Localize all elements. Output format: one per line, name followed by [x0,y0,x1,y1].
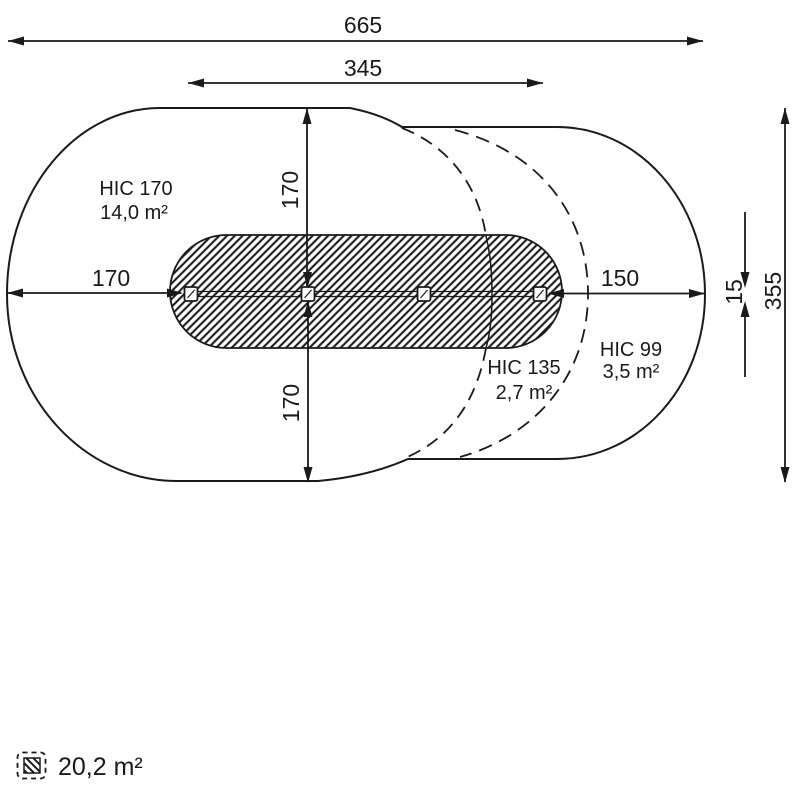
zone-label-hic170: HIC 170 [99,178,172,200]
label-vertical-down: 170 [278,384,304,422]
label-left-clearance: 170 [92,265,130,291]
arrowhead-left [188,79,204,88]
swing-post [185,287,198,301]
arrowhead-up [781,108,790,124]
label-total-width: 665 [344,12,382,38]
zone-area-hic170: 14,0 m² [100,202,168,224]
label-right-clearance: 150 [601,265,639,291]
arrowhead-right [689,289,705,298]
legend-area-value: 20,2 m² [58,753,143,781]
swing-post [302,287,315,301]
zone-label-hic99: HIC 99 [600,339,662,361]
label-post-span: 345 [344,55,382,81]
arrowhead-left [7,289,23,298]
label-total-height: 355 [760,272,786,310]
label-beam-thickness: 15 [721,279,747,305]
diagram-canvas: 665 345 170 150 170 170 355 15 HIC 170 1… [0,0,800,800]
hic135-dashed-boundary-upper [402,128,486,236]
hic135-dashed-boundary-lower [405,348,486,458]
zone-area-hic99: 3,5 m² [603,361,660,383]
swing-post [534,287,547,301]
legend-hatch-swatch-icon [24,758,40,773]
swing-post [418,287,431,301]
zone-label-hic135: HIC 135 [487,357,560,379]
label-vertical-up: 170 [277,171,303,209]
arrowhead-down [781,467,790,483]
arrowhead-left [8,37,24,46]
safety-zone-diagram: 665 345 170 150 170 170 355 15 HIC 170 1… [0,0,800,800]
arrowhead-right [687,37,703,46]
legend: 20,2 m² [18,753,143,782]
arrowhead-up [303,108,312,124]
arrowhead-right [527,79,543,88]
zone-area-hic135: 2,7 m² [496,382,553,404]
